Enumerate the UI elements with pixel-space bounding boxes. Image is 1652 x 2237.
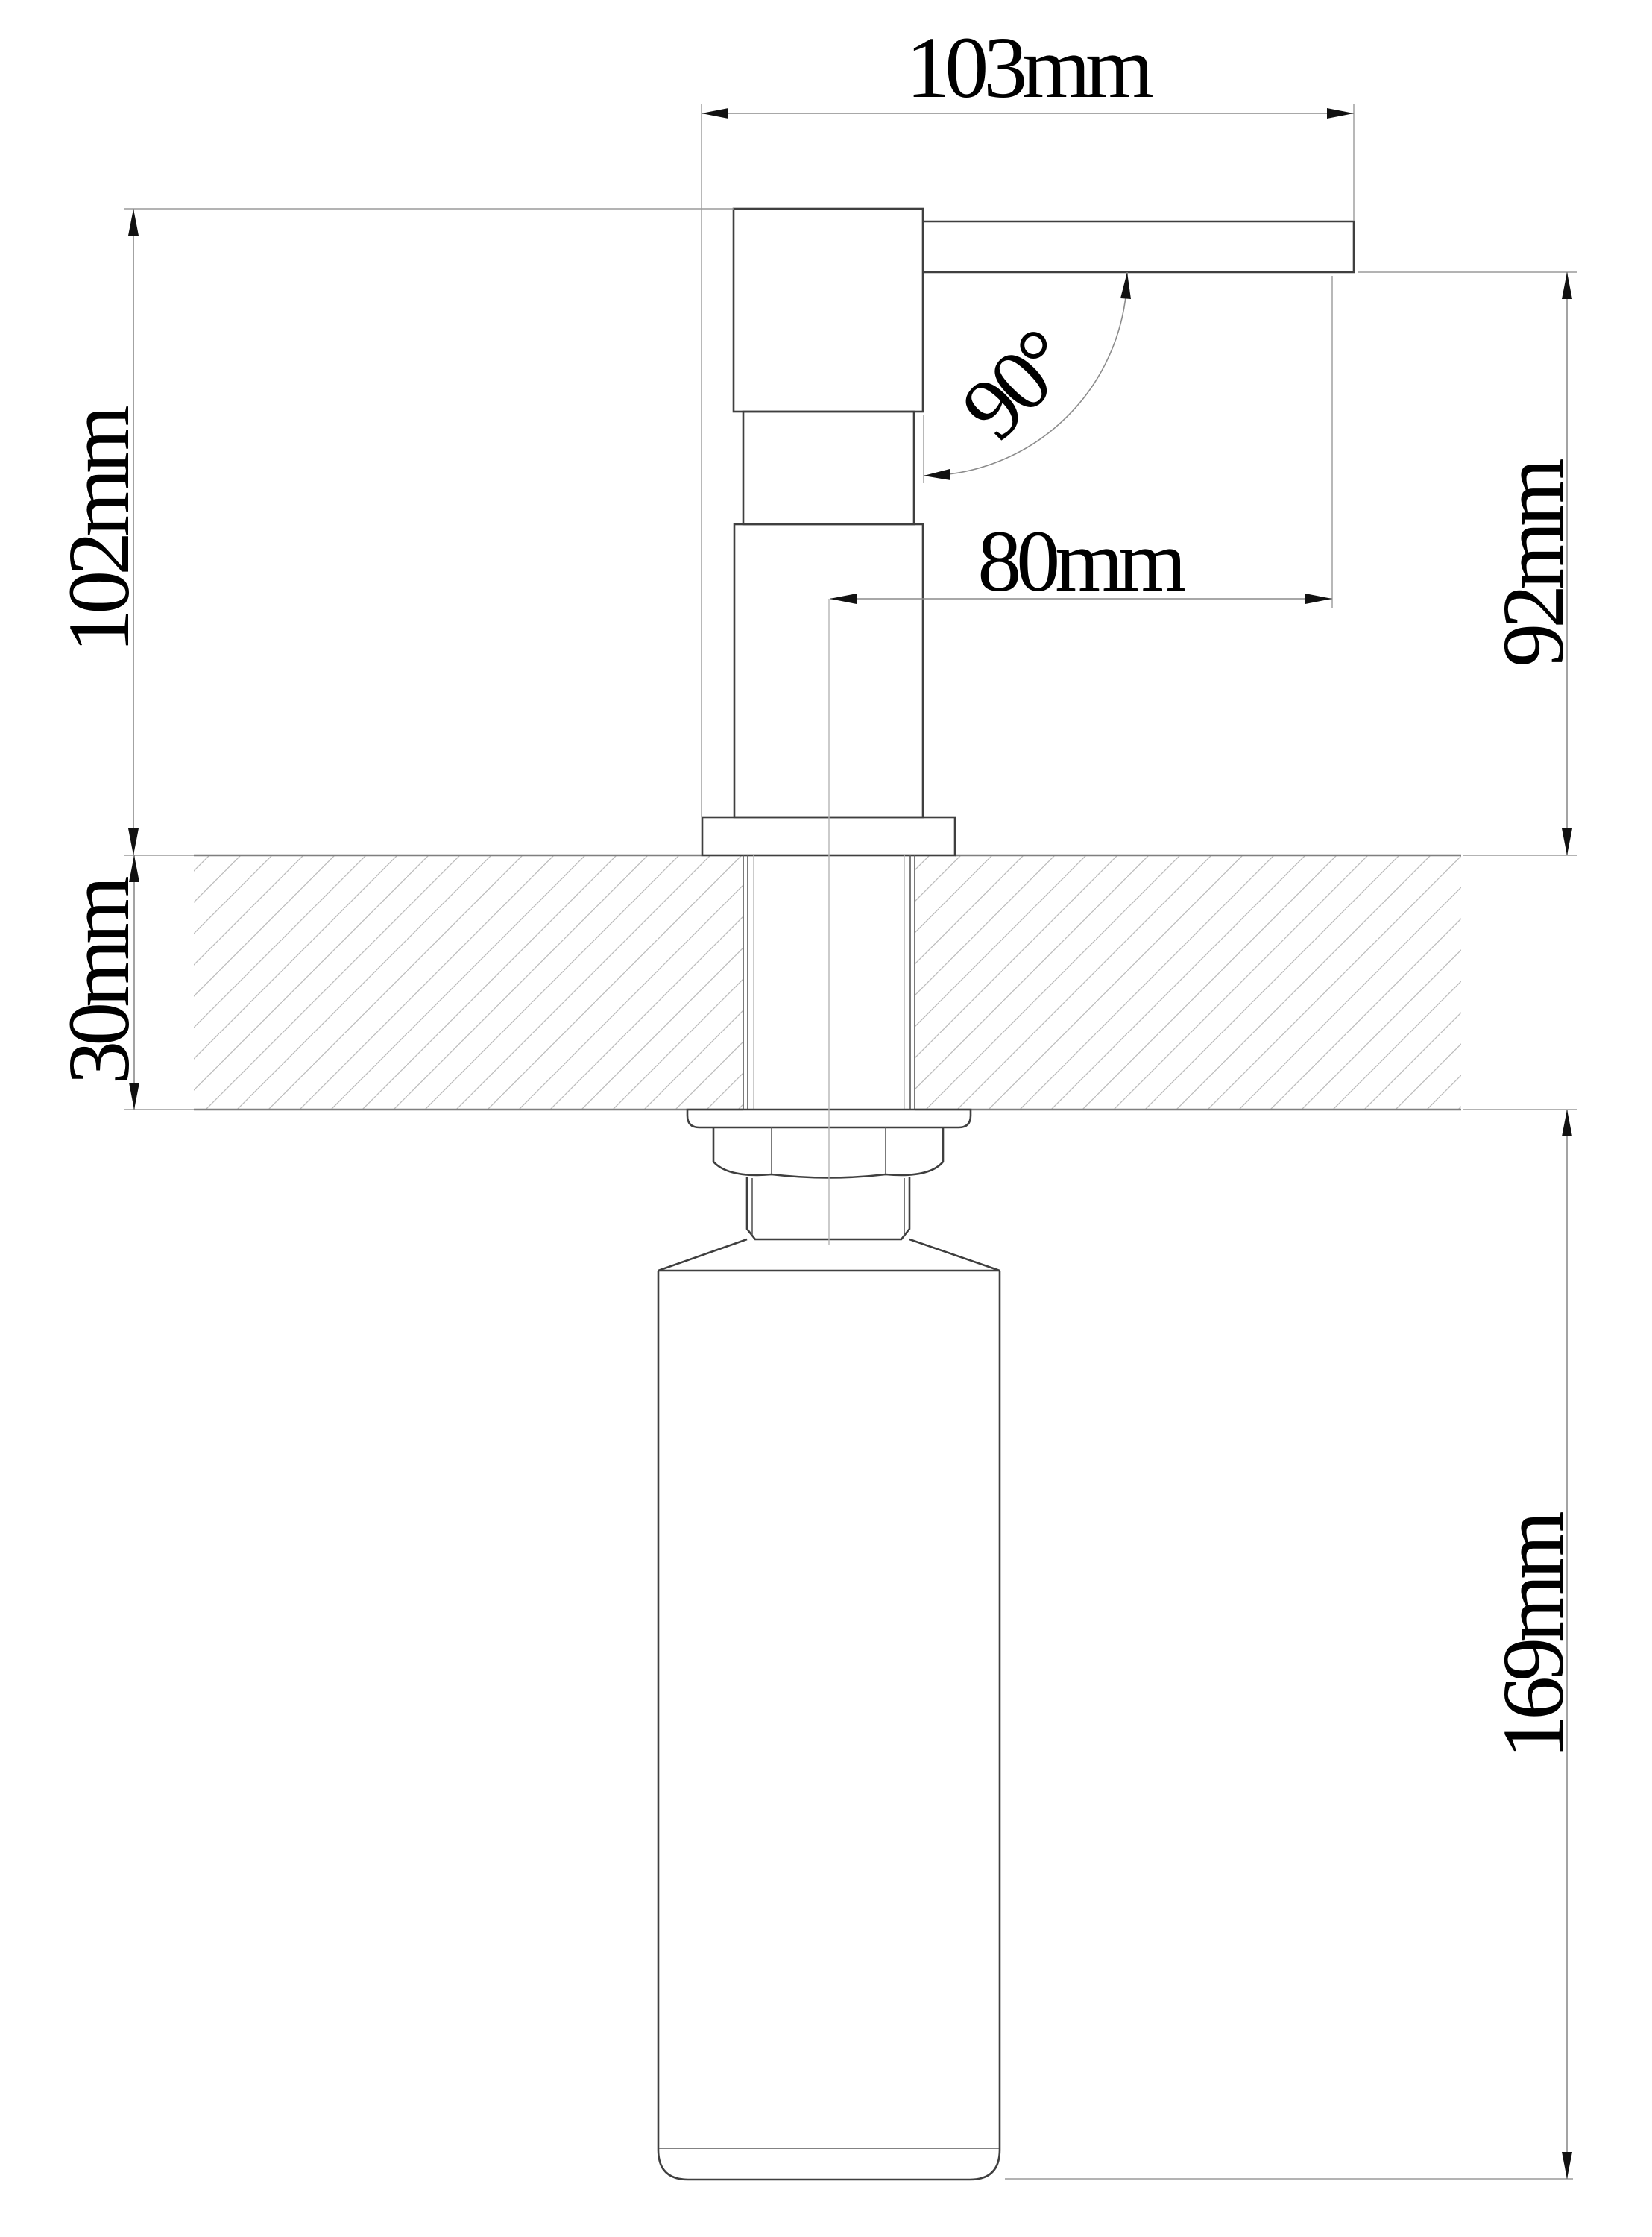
dimension-102: 102mm	[50, 209, 148, 855]
dim-80-arrow-left	[830, 594, 857, 604]
dimension-92: 92mm	[1484, 272, 1582, 855]
dim-30-arrow-bottom	[129, 1083, 139, 1110]
thread-collar	[747, 1177, 909, 1239]
dim-80-arrow-right	[1305, 594, 1332, 604]
pump-neck	[743, 412, 914, 524]
dimension-30: 30mm	[50, 855, 148, 1110]
dimension-angle-90: 90°	[924, 272, 1131, 480]
dimension-80: 80mm	[830, 512, 1332, 610]
dim-103-arrow-left	[702, 108, 728, 119]
dim-label-102: 102mm	[50, 406, 148, 653]
bottle	[658, 1239, 1000, 2180]
pump-cap	[734, 209, 923, 412]
angle-arrow-top	[1120, 272, 1131, 299]
dim-label-angle: 90°	[943, 312, 1089, 458]
bottle-shoulder-left	[658, 1239, 747, 1271]
drawing-canvas: 103mm 102mm 30mm 92mm 169mm 80mm	[0, 0, 1652, 2237]
counter-hatch-right	[915, 855, 1461, 1110]
dim-169-arrow-bottom	[1562, 2152, 1572, 2179]
dim-30-arrow-top	[129, 855, 139, 882]
angle-arrow-bottom	[924, 469, 950, 480]
dispenser-dimension-drawing: 103mm 102mm 30mm 92mm 169mm 80mm	[0, 0, 1652, 2237]
dim-label-169: 169mm	[1484, 1512, 1582, 1759]
counter-hatch-left	[194, 855, 743, 1110]
dim-169-arrow-top	[1562, 1110, 1572, 1136]
dim-label-30: 30mm	[50, 877, 148, 1085]
counter-slab	[194, 855, 1461, 1110]
hex-nut	[713, 1127, 943, 1178]
bottle-shoulder-right	[909, 1239, 1000, 1271]
dim-103-arrow-right	[1327, 108, 1354, 119]
spout	[923, 221, 1354, 272]
dim-92-arrow-bottom	[1562, 828, 1572, 855]
dim-102-arrow-top	[128, 209, 139, 236]
dim-92-arrow-top	[1562, 272, 1572, 299]
dim-label-103: 103mm	[906, 19, 1153, 116]
extension-lines	[124, 104, 1577, 2179]
dim-label-80: 80mm	[977, 512, 1185, 610]
dim-label-92: 92mm	[1484, 459, 1582, 667]
dimension-103: 103mm	[702, 19, 1354, 119]
dimension-169: 169mm	[1484, 1110, 1582, 2179]
bottle-body	[658, 1271, 1000, 2180]
dim-102-arrow-bottom	[128, 828, 139, 855]
